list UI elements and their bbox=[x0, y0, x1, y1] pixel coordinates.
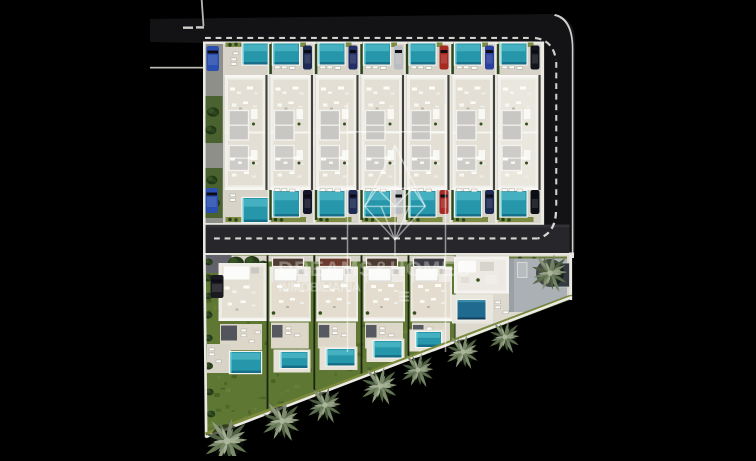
svg-text:INMOBILIARIA: INMOBILIARIA bbox=[279, 281, 363, 295]
svg-text:DREAMS&HOMES: DREAMS&HOMES bbox=[278, 258, 472, 281]
